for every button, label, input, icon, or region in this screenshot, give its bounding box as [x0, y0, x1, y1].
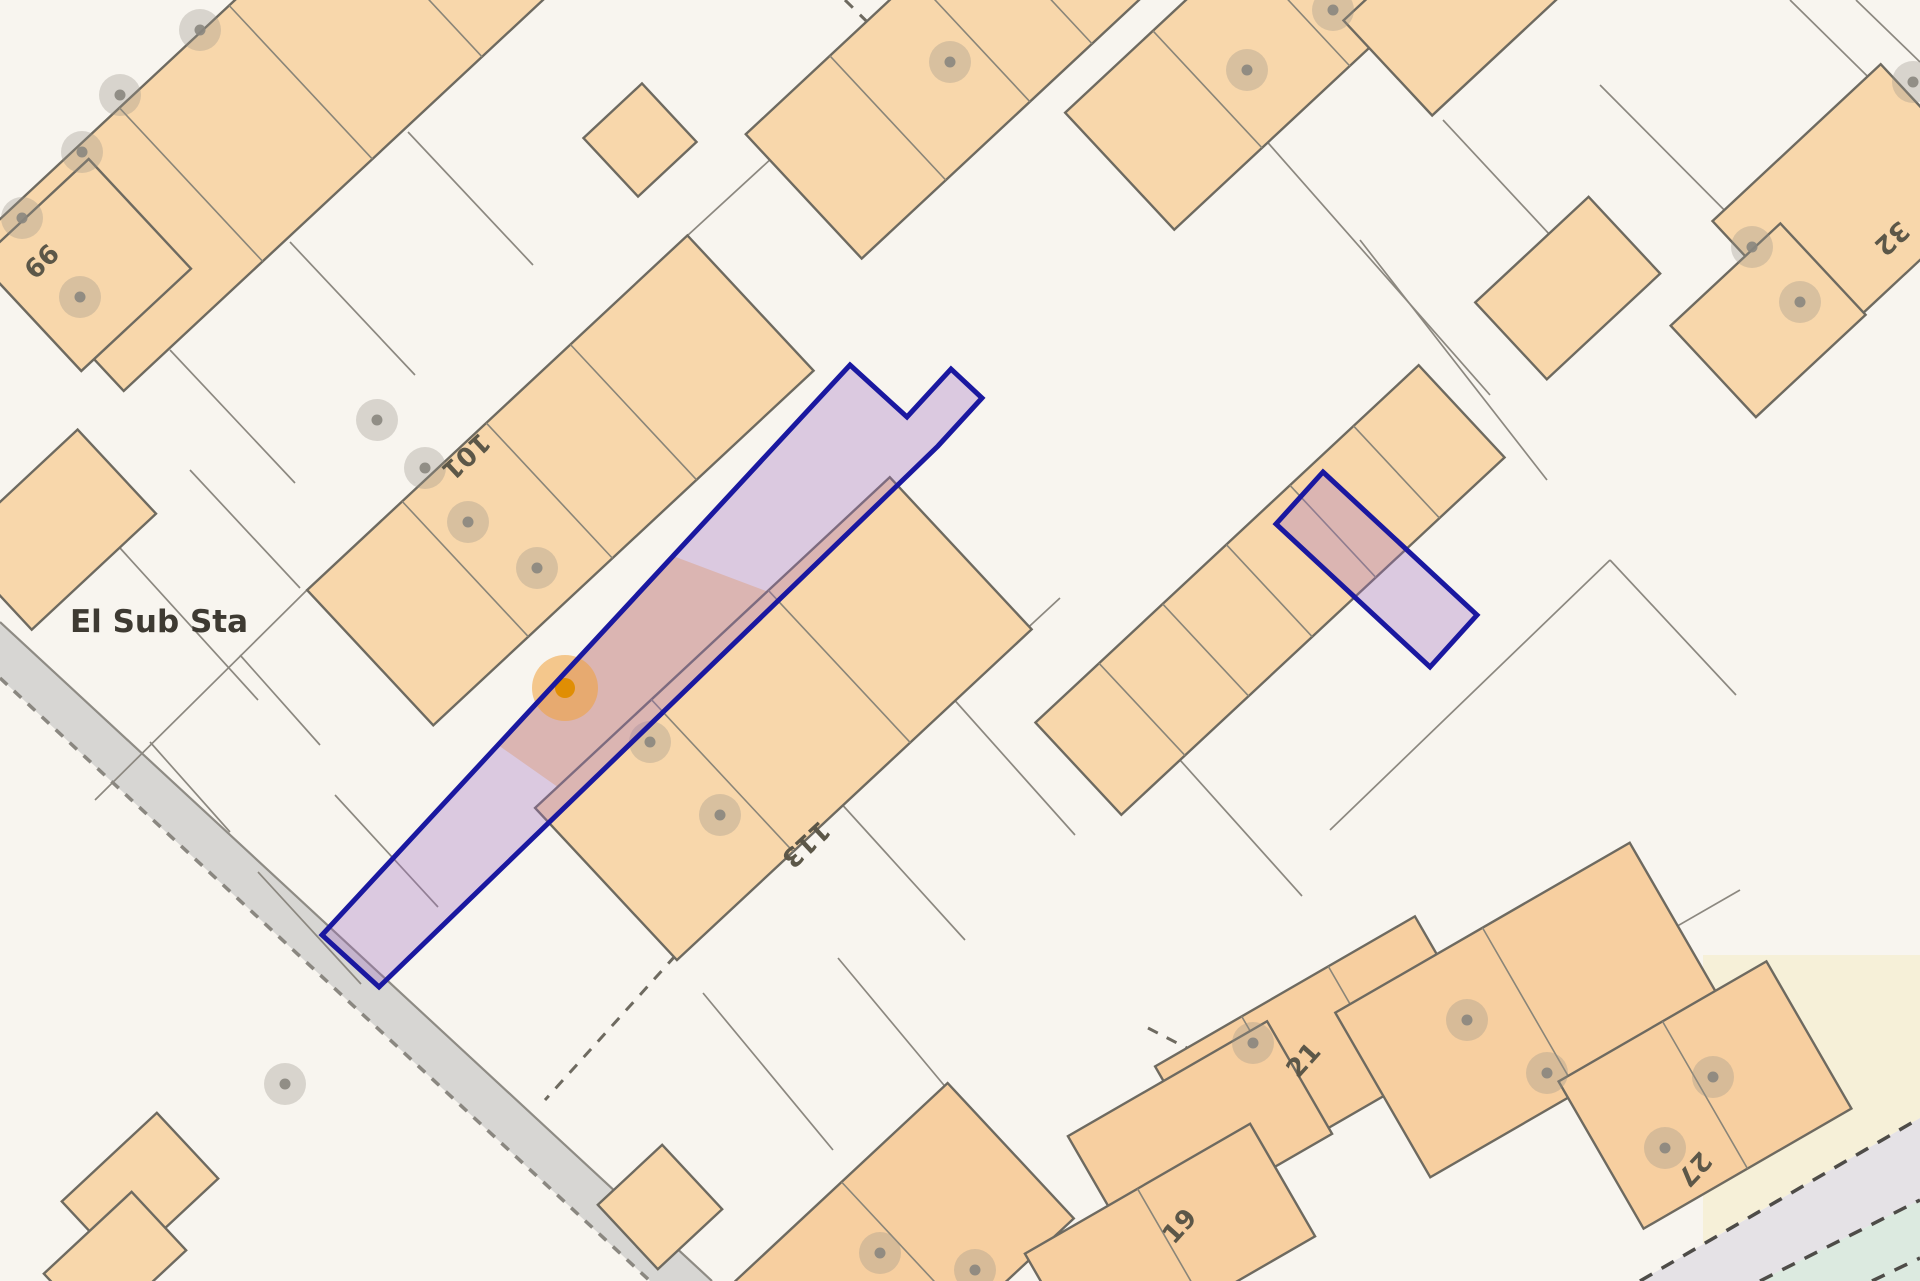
selected-point-marker[interactable]	[532, 655, 598, 721]
map-viewport[interactable]: El Sub Sta 66 101 113 21 19 27 32	[0, 0, 1920, 1281]
map-canvas[interactable]: El Sub Sta 66 101 113 21 19 27 32	[0, 0, 1920, 1281]
label-el-sub-sta: El Sub Sta	[70, 604, 248, 640]
